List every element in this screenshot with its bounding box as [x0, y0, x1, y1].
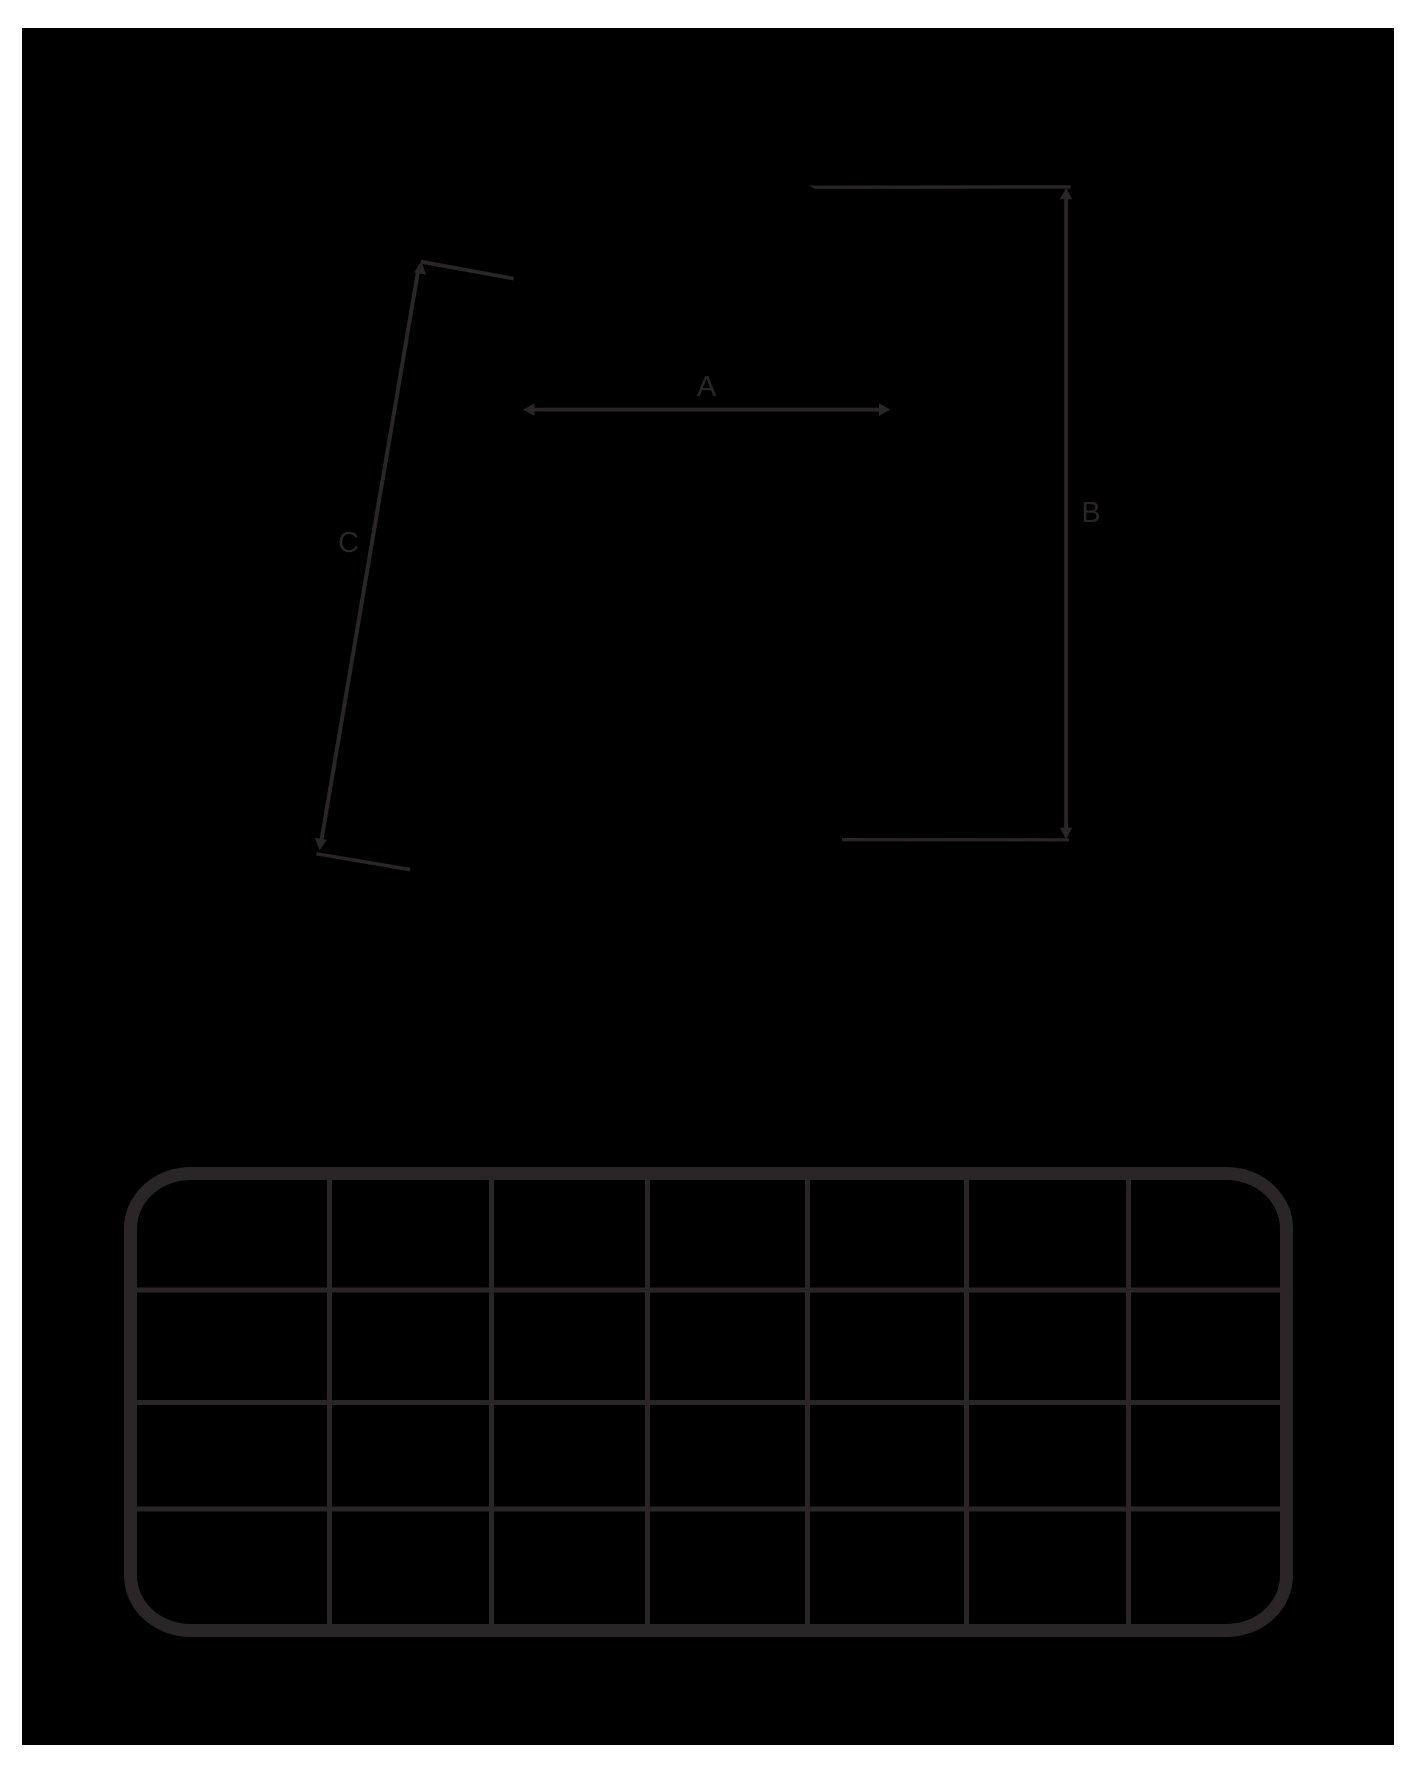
svg-text:A: A	[697, 371, 717, 403]
svg-text:C: C	[338, 527, 359, 559]
svg-text:B: B	[1081, 497, 1100, 529]
